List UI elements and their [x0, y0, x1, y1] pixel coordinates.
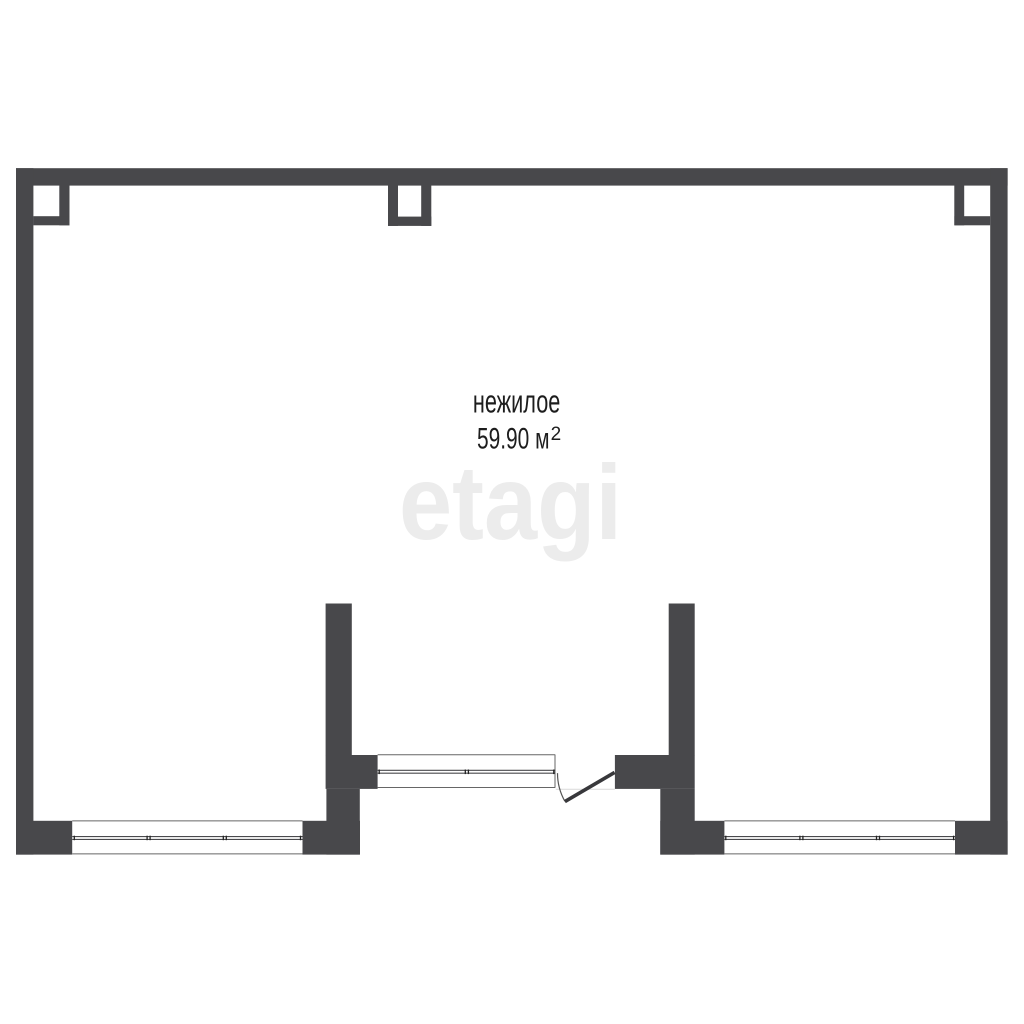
svg-text:2: 2: [551, 424, 562, 445]
svg-text:59.90 м: 59.90 м: [477, 422, 550, 455]
svg-text:etagi: etagi: [399, 444, 622, 562]
svg-text:нежилое: нежилое: [473, 384, 561, 420]
